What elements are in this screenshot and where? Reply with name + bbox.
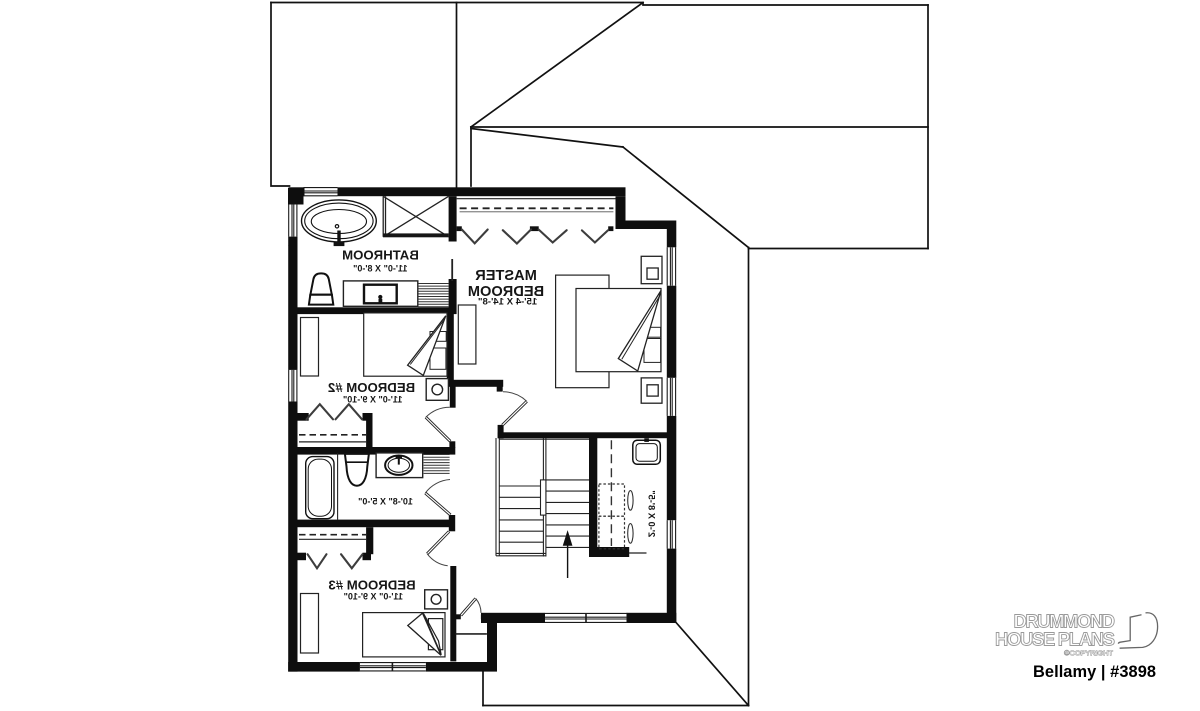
svg-text:11'-0" X 8'-0": 11'-0" X 8'-0" [353, 263, 407, 273]
svg-text:BATHROOM: BATHROOM [342, 247, 419, 262]
svg-text:11'-0" X 9'-10": 11'-0" X 9'-10" [343, 394, 402, 404]
svg-text:11'-0" X 9'-10": 11'-0" X 9'-10" [344, 591, 403, 601]
svg-text:2'-0 X 8'-5": 2'-0 X 8'-5" [647, 490, 657, 537]
svg-text:MASTER: MASTER [475, 268, 537, 284]
svg-text:©COPYRIGHT: ©COPYRIGHT [1064, 649, 1113, 658]
svg-text:HOUSE PLANS: HOUSE PLANS [995, 629, 1115, 650]
svg-text:BEDROOM #2: BEDROOM #2 [328, 380, 415, 395]
svg-text:BEDROOM #3: BEDROOM #3 [328, 577, 415, 592]
svg-text:15'-4 X 14'-8": 15'-4 X 14'-8" [478, 296, 537, 307]
svg-text:Bellamy | #3898: Bellamy | #3898 [1033, 663, 1156, 681]
svg-text:10'-8" X 5'-0": 10'-8" X 5'-0" [358, 497, 413, 507]
